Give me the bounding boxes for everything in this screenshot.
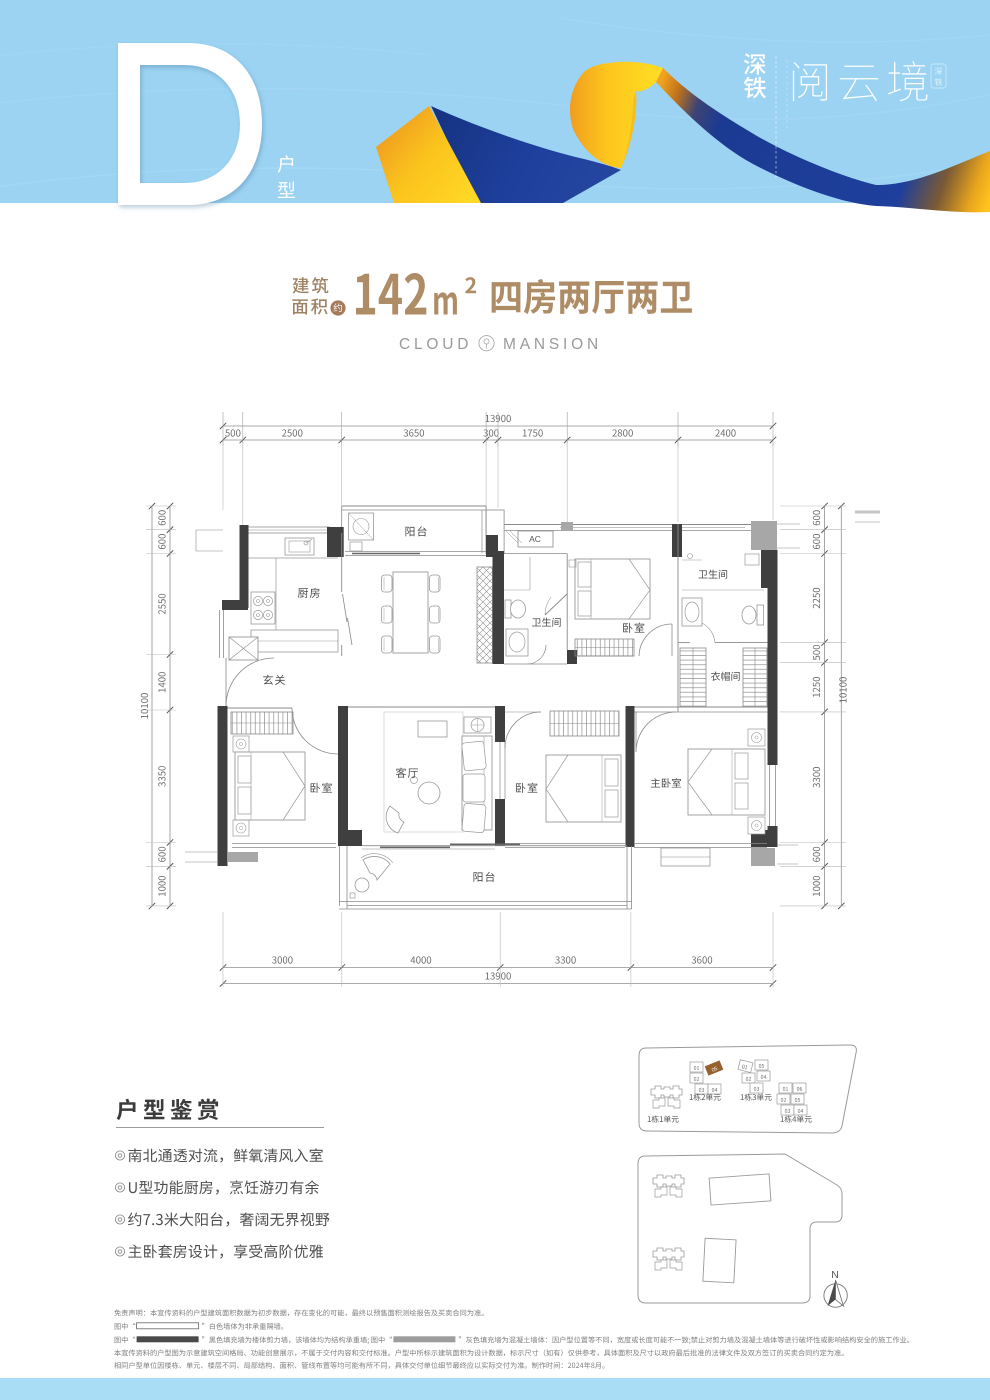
svg-text:AC: AC (529, 534, 541, 544)
svg-text:N: N (831, 1269, 839, 1281)
svg-text:MANSION: MANSION (503, 336, 602, 353)
svg-text:CLOUD: CLOUD (399, 336, 472, 353)
